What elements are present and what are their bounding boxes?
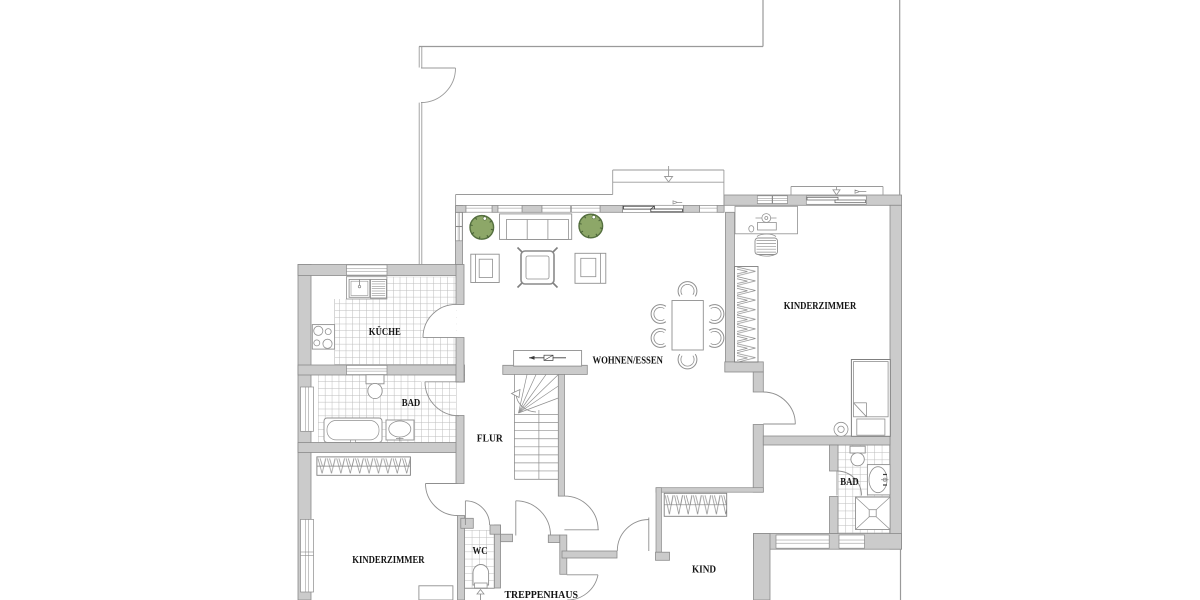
svg-text:KINDERZIMMER: KINDERZIMMER (784, 300, 857, 312)
svg-text:BAD: BAD (402, 397, 421, 409)
svg-text:KÜCHE: KÜCHE (369, 325, 401, 338)
svg-text:TREPPENHAUS: TREPPENHAUS (504, 589, 578, 600)
svg-text:KINDERZIMMER: KINDERZIMMER (352, 554, 425, 566)
svg-text:KIND: KIND (692, 564, 716, 576)
svg-text:WC: WC (473, 545, 488, 557)
svg-text:FLUR: FLUR (477, 433, 504, 445)
svg-text:BAD: BAD (840, 476, 858, 488)
svg-text:WOHNEN/ESSEN: WOHNEN/ESSEN (592, 354, 663, 366)
